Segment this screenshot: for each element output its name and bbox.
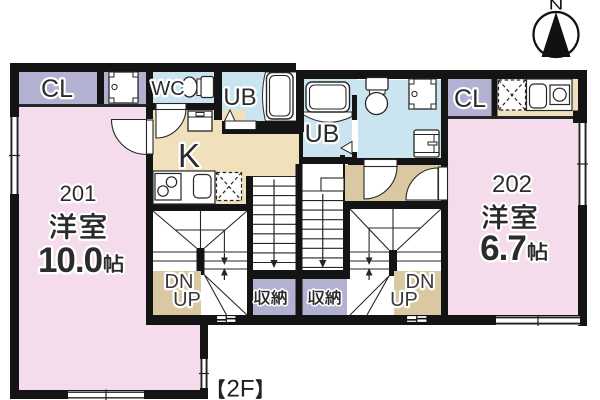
svg-text:WC: WC — [151, 78, 184, 100]
svg-text:UP: UP — [390, 289, 418, 311]
svg-text:202: 202 — [492, 171, 532, 198]
svg-text:10.0: 10.0 — [38, 241, 103, 280]
svg-text:6.7: 6.7 — [480, 229, 526, 268]
svg-text:UB: UB — [223, 84, 256, 111]
svg-text:UP: UP — [173, 289, 201, 311]
svg-text:K: K — [178, 137, 200, 174]
svg-text:2F: 2F — [226, 376, 254, 400]
svg-text:UB: UB — [305, 120, 340, 148]
svg-text:CL: CL — [41, 75, 73, 103]
svg-text:201: 201 — [60, 181, 97, 206]
svg-text:CL: CL — [454, 85, 486, 113]
